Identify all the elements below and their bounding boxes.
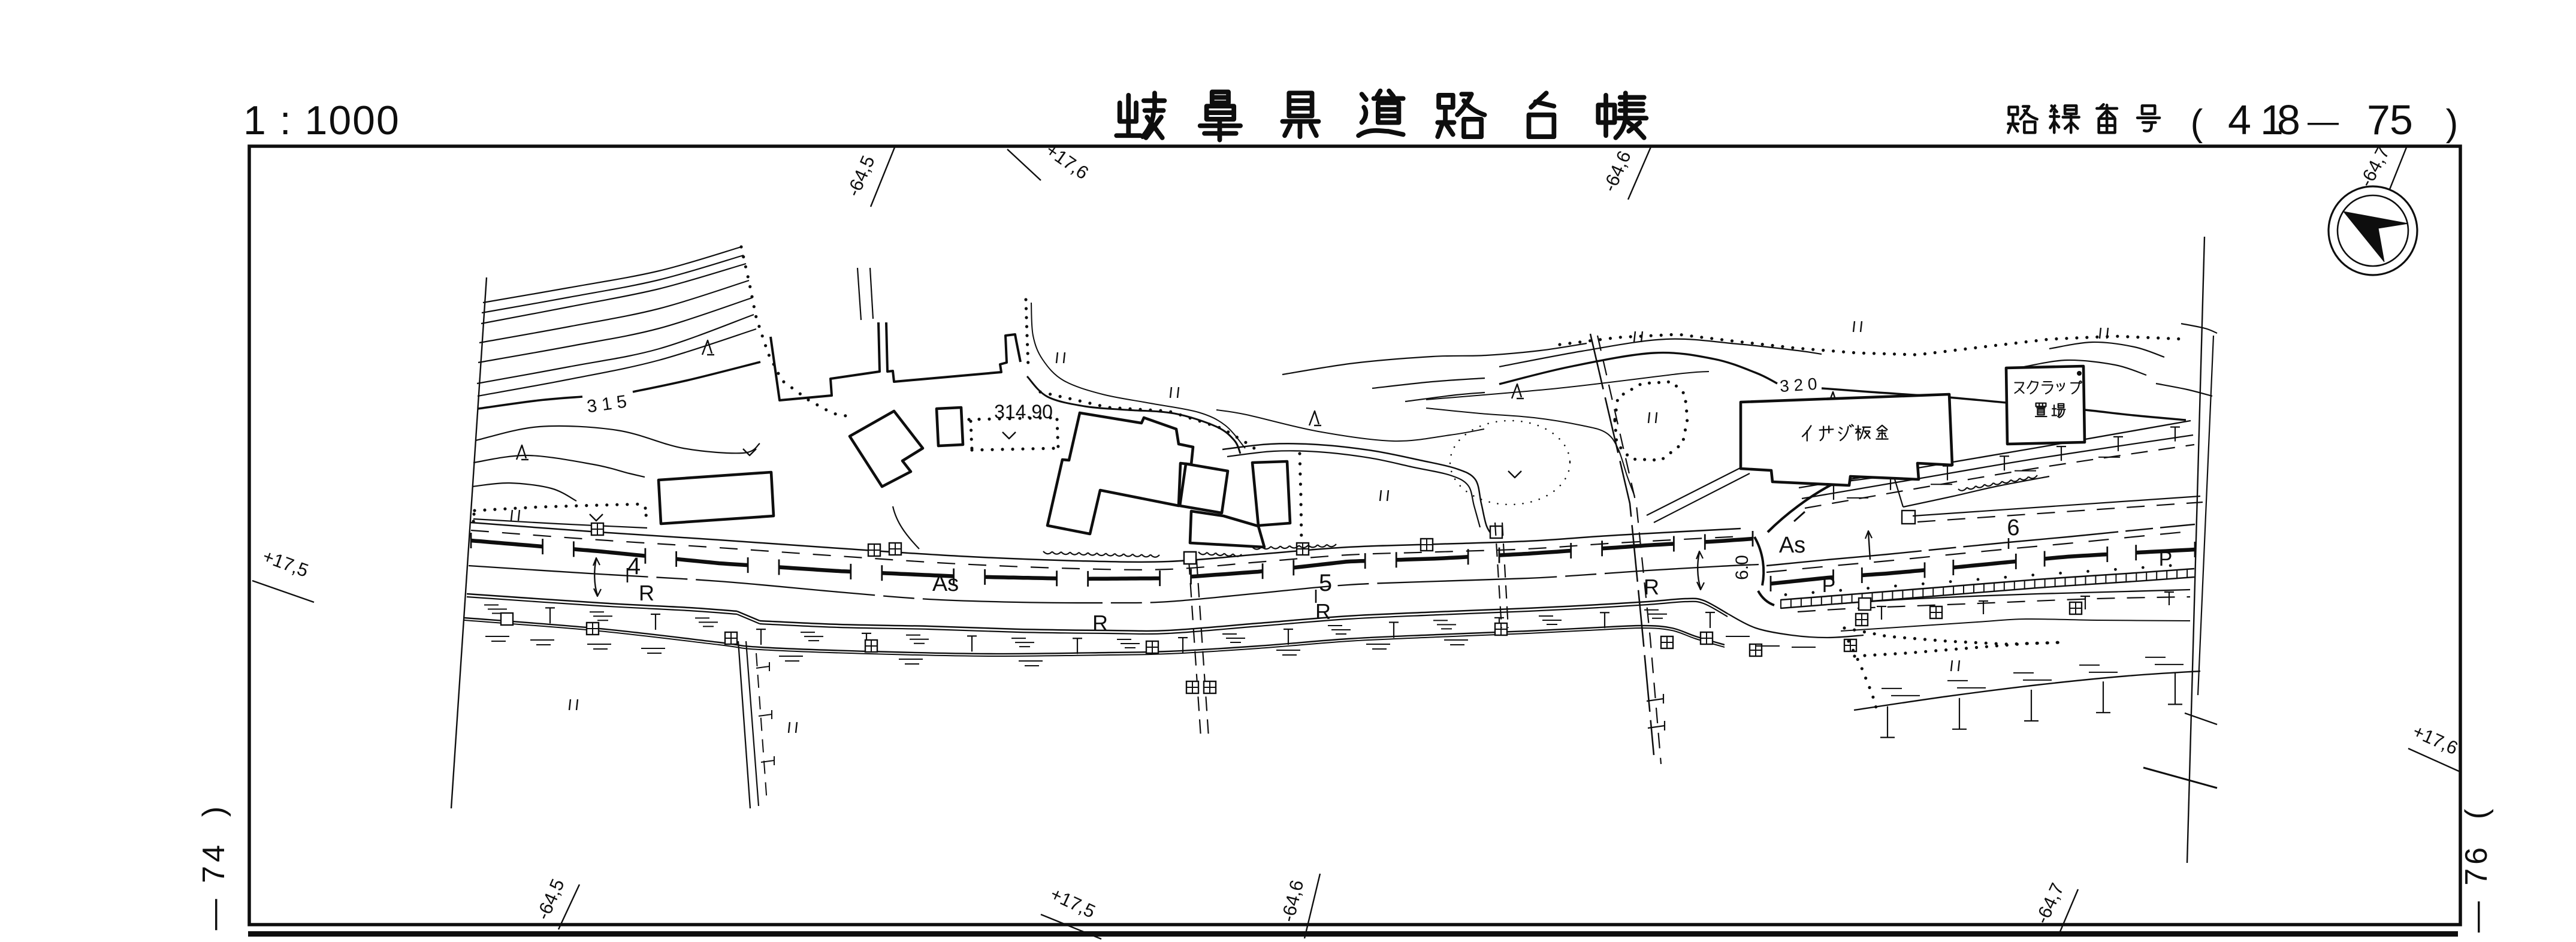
svg-text:1 : 1000: 1 : 1000 <box>243 98 400 143</box>
svg-text:5: 5 <box>2390 96 2413 143</box>
svg-text:(: ( <box>2191 102 2203 144</box>
svg-text:As: As <box>932 571 959 596</box>
svg-text:P: P <box>1822 574 1836 597</box>
svg-text:R: R <box>639 581 654 605</box>
svg-text:As: As <box>1779 533 1805 558</box>
svg-text:6.0: 6.0 <box>1732 555 1752 580</box>
svg-text:R: R <box>1315 599 1331 624</box>
svg-text:): ) <box>2446 102 2459 144</box>
svg-text:6: 6 <box>2007 515 2019 541</box>
svg-text:— 74 ): — 74 ) <box>197 803 231 931</box>
svg-text:8: 8 <box>2277 96 2300 143</box>
svg-text:R: R <box>1092 611 1108 635</box>
svg-text:4: 4 <box>627 553 641 579</box>
svg-text:314.90: 314.90 <box>994 401 1053 422</box>
svg-text:—: — <box>2308 104 2339 139</box>
svg-text:P: P <box>2159 548 2173 570</box>
svg-text:4: 4 <box>2228 96 2251 143</box>
svg-text:5: 5 <box>1319 570 1332 596</box>
svg-text:3 2 0: 3 2 0 <box>1779 375 1817 395</box>
svg-text:R: R <box>1644 575 1659 599</box>
svg-text:— 76 (: — 76 ( <box>2459 805 2494 933</box>
svg-text:7: 7 <box>2367 96 2390 143</box>
